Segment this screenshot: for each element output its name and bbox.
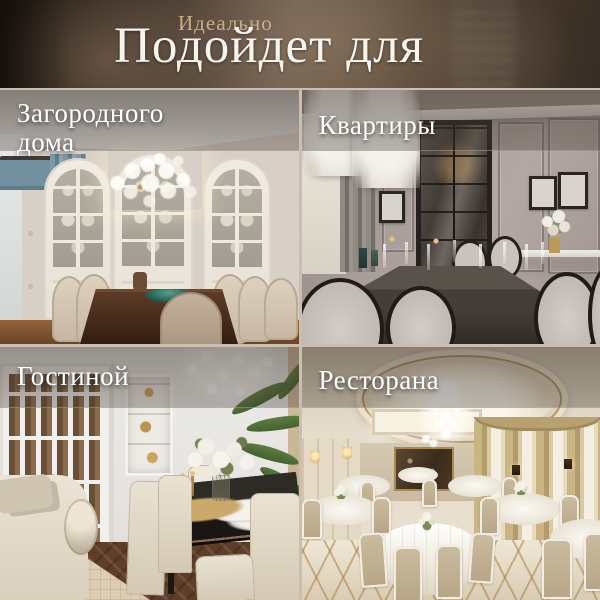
chair <box>480 497 499 535</box>
table-flowers <box>512 479 530 495</box>
flower-bouquet <box>110 228 172 278</box>
table-flowers <box>332 483 350 499</box>
framed-picture <box>558 172 588 209</box>
chair <box>250 493 299 600</box>
sofa <box>0 475 88 600</box>
table-flowers <box>414 507 440 531</box>
chair <box>160 292 222 344</box>
rose-bouquet <box>184 431 258 483</box>
tile-label-country-house: Загородного дома <box>17 99 164 156</box>
chair <box>158 475 192 573</box>
header-title: Подойдет для <box>114 21 424 72</box>
wall-sconce <box>512 465 520 475</box>
tile-country-house: Загородного дома <box>0 90 299 344</box>
chair <box>372 497 391 535</box>
chair <box>542 539 572 599</box>
crystal-chandelier <box>414 431 444 451</box>
tile-label-restaurant: Ресторана <box>319 366 440 395</box>
tile-label-living-room: Гостиной <box>17 362 129 391</box>
photo-grid: Загородного дома <box>0 88 600 600</box>
wall-sconce <box>310 451 320 465</box>
framed-picture <box>529 176 557 210</box>
chair <box>302 499 322 539</box>
chair <box>422 479 437 507</box>
header-banner: Идеально Подойдет для <box>0 0 600 88</box>
chair <box>584 533 600 591</box>
chair <box>358 532 388 588</box>
round-table <box>448 475 502 497</box>
chair <box>394 547 422 600</box>
promo-image: Идеально Подойдет для <box>0 0 600 600</box>
bubble-chandelier <box>108 150 202 210</box>
chair <box>468 532 495 584</box>
tile-label-apartment: Квартиры <box>319 111 436 140</box>
chair <box>195 554 255 600</box>
wall-sconce <box>564 459 572 469</box>
tile-apartment: Квартиры <box>302 90 600 344</box>
glassware-and-candles <box>357 236 547 270</box>
tile-living-room: Гостиной <box>0 347 299 600</box>
tile-restaurant: Ресторана <box>302 347 600 600</box>
chair <box>436 545 462 599</box>
framed-picture <box>379 191 405 223</box>
round-table <box>378 523 478 595</box>
chair <box>264 278 298 340</box>
wall-sconce <box>342 447 352 461</box>
